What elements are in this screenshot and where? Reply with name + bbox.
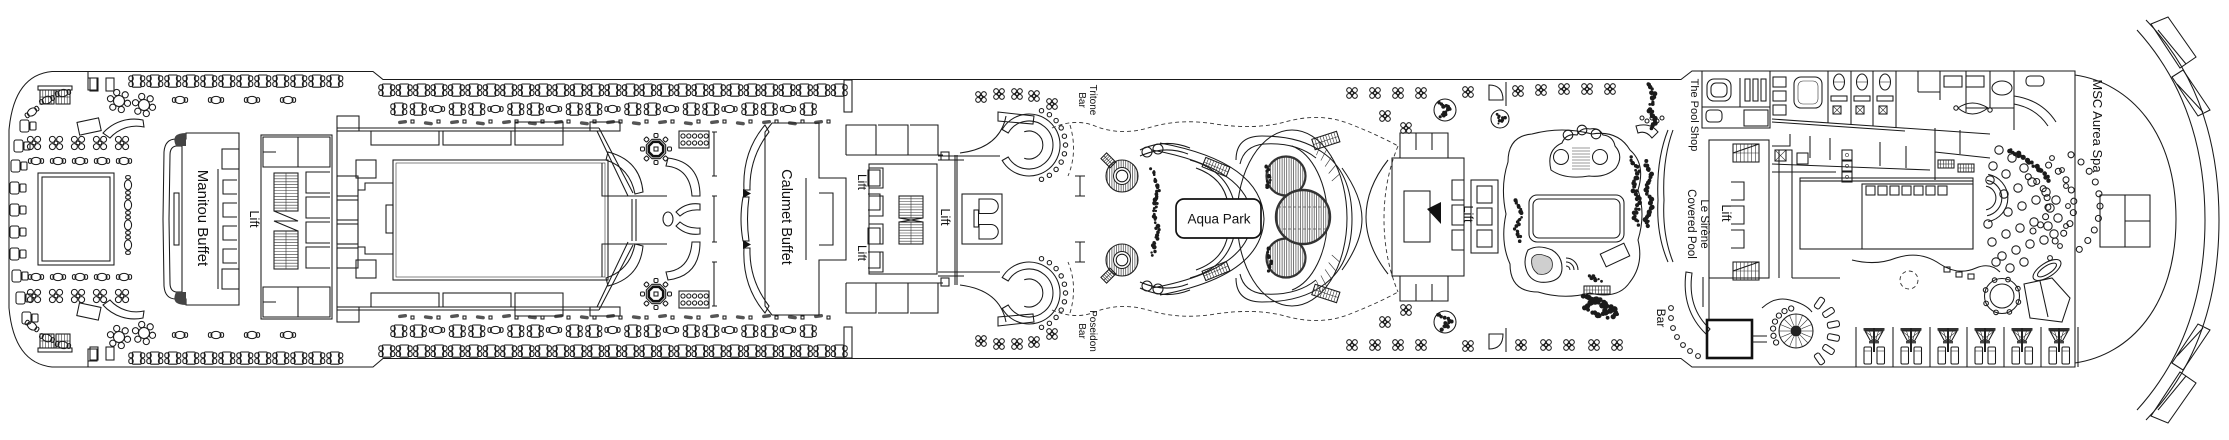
svg-text:Lift: Lift [247, 210, 262, 228]
svg-text:Bar: Bar [1076, 323, 1087, 339]
svg-text:Covered Pool: Covered Pool [1685, 189, 1697, 259]
svg-text:Le Sirène: Le Sirène [1698, 199, 1710, 248]
svg-text:Lift: Lift [855, 174, 869, 191]
svg-text:Lift: Lift [938, 208, 953, 226]
svg-text:Manitou Buffet: Manitou Buffet [194, 170, 211, 267]
svg-text:Tritone: Tritone [1087, 85, 1098, 116]
svg-text:Lift: Lift [1719, 204, 1734, 222]
svg-text:Aqua Park: Aqua Park [1187, 212, 1250, 227]
svg-text:The Pool Shop: The Pool Shop [1688, 79, 1700, 152]
svg-text:Poseidon: Poseidon [1087, 310, 1098, 352]
svg-text:Lift: Lift [1461, 205, 1476, 223]
svg-text:Bar: Bar [1076, 92, 1087, 108]
svg-text:Lift: Lift [855, 245, 869, 262]
svg-text:MSC Aurea Spa: MSC Aurea Spa [2090, 79, 2105, 173]
svg-text:Bar: Bar [1654, 309, 1668, 328]
svg-text:Calumet Buffet: Calumet Buffet [778, 169, 794, 265]
